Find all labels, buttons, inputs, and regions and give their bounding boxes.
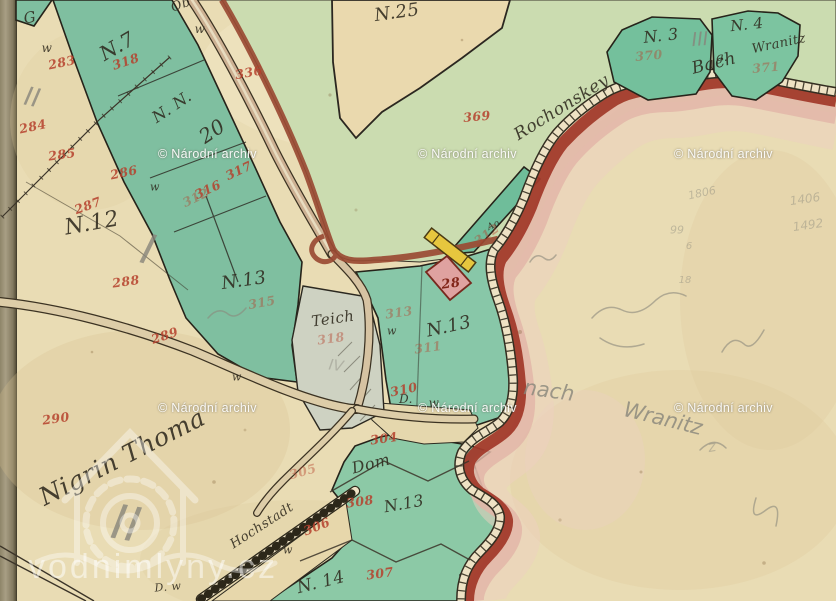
historical-cadastral-map-scan: GObwwN.7N. N.20N.25N. 3N. 4Wranitzg.N.12…: [0, 0, 836, 601]
map-artwork: [0, 0, 836, 601]
